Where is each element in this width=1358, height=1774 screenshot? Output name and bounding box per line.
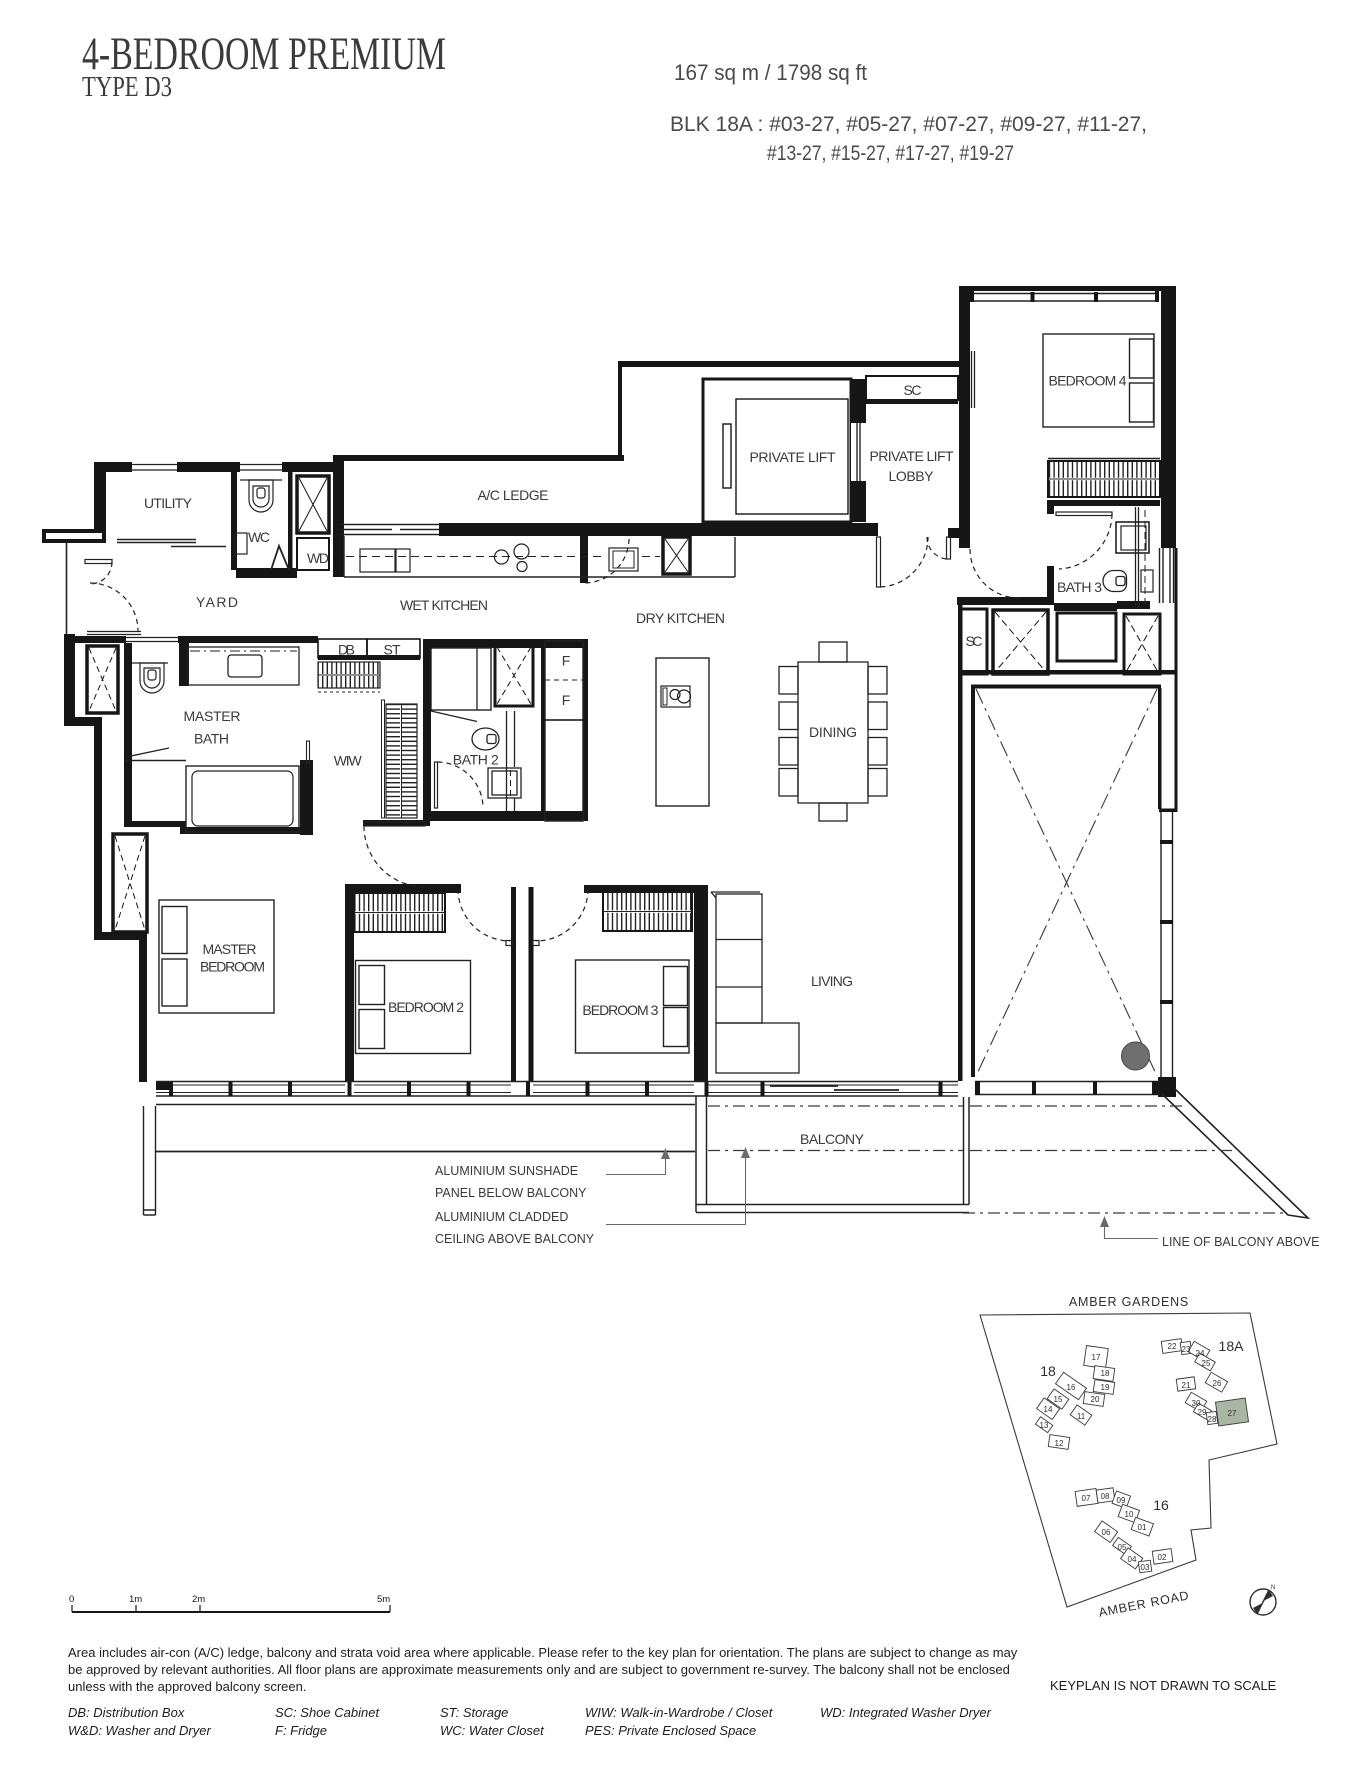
svg-text:be approved by relevant author: be approved by relevant authorities. All… [68, 1662, 1010, 1677]
svg-text:DRY KITCHEN: DRY KITCHEN [636, 610, 725, 626]
svg-text:17: 17 [1092, 1353, 1101, 1362]
svg-text:16: 16 [1153, 1497, 1169, 1513]
svg-text:#13-27, #15-27, #17-27, #19-27: #13-27, #15-27, #17-27, #19-27 [767, 142, 1014, 165]
svg-text:12: 12 [1055, 1439, 1064, 1448]
svg-text:DINING: DINING [809, 724, 857, 740]
svg-text:CEILING ABOVE BALCONY: CEILING ABOVE BALCONY [435, 1232, 595, 1246]
svg-text:02: 02 [1158, 1553, 1167, 1562]
svg-text:F: F [562, 692, 571, 708]
svg-text:18: 18 [1040, 1363, 1056, 1379]
svg-text:N: N [1271, 1585, 1275, 1591]
svg-text:21: 21 [1182, 1381, 1191, 1390]
svg-text:SC: SC [904, 382, 922, 398]
svg-text:ST: Storage: ST: Storage [440, 1705, 508, 1720]
svg-text:26: 26 [1213, 1379, 1222, 1388]
svg-text:25: 25 [1202, 1359, 1211, 1368]
svg-text:ALUMINIUM SUNSHADE: ALUMINIUM SUNSHADE [435, 1164, 578, 1178]
svg-text:DB: Distribution Box: DB: Distribution Box [68, 1705, 185, 1720]
svg-text:01: 01 [1138, 1523, 1147, 1532]
svg-text:UTILITY: UTILITY [144, 495, 193, 511]
svg-text:08: 08 [1101, 1492, 1110, 1501]
svg-text:22: 22 [1168, 1342, 1177, 1351]
svg-text:29: 29 [1198, 1408, 1207, 1417]
svg-text:0: 0 [69, 1594, 74, 1605]
svg-text:23: 23 [1182, 1345, 1191, 1354]
svg-text:19: 19 [1101, 1383, 1110, 1392]
svg-text:BLK 18A : #03-27, #05-27, #07-: BLK 18A : #03-27, #05-27, #07-27, #09-27… [670, 113, 1147, 136]
svg-text:30: 30 [1192, 1399, 1201, 1408]
svg-text:04: 04 [1128, 1555, 1137, 1564]
svg-text:1m: 1m [129, 1594, 142, 1605]
svg-text:PRIVATE LIFT: PRIVATE LIFT [750, 449, 836, 465]
svg-text:15: 15 [1054, 1395, 1063, 1404]
svg-text:A/C LEDGE: A/C LEDGE [478, 487, 549, 503]
svg-text:YARD: YARD [196, 594, 238, 610]
svg-text:WET KITCHEN: WET KITCHEN [400, 597, 488, 613]
svg-text:11: 11 [1077, 1412, 1086, 1421]
svg-text:LINE OF BALCONY ABOVE: LINE OF BALCONY ABOVE [1162, 1235, 1319, 1249]
svg-text:F: Fridge: F: Fridge [275, 1723, 327, 1738]
svg-text:06: 06 [1102, 1528, 1111, 1537]
svg-text:20: 20 [1091, 1395, 1100, 1404]
svg-text:24: 24 [1196, 1349, 1205, 1358]
svg-text:Area includes air-con (A/C) le: Area includes air-con (A/C) ledge, balco… [68, 1645, 1018, 1660]
svg-text:28: 28 [1208, 1415, 1217, 1424]
svg-text:18: 18 [1101, 1369, 1110, 1378]
svg-text:10: 10 [1125, 1510, 1134, 1519]
svg-text:TYPE D3: TYPE D3 [82, 71, 172, 103]
svg-text:MASTER: MASTER [203, 941, 257, 957]
svg-text:LOBBY: LOBBY [889, 468, 935, 484]
svg-text:BATH 2: BATH 2 [453, 752, 499, 768]
svg-text:5m: 5m [377, 1594, 390, 1605]
svg-text:18A: 18A [1219, 1338, 1245, 1354]
svg-text:W&D: Washer and Dryer: W&D: Washer and Dryer [68, 1723, 211, 1738]
svg-text:07: 07 [1082, 1494, 1091, 1503]
svg-text:DB: DB [338, 642, 355, 658]
svg-text:ST: ST [384, 642, 401, 658]
svg-text:WIW: Walk-in-Wardrobe / Closet: WIW: Walk-in-Wardrobe / Closet [585, 1705, 774, 1720]
svg-text:WC: Water Closet: WC: Water Closet [440, 1723, 545, 1738]
svg-text:03: 03 [1141, 1563, 1150, 1572]
svg-text:unless with the approved balco: unless with the approved balcony screen. [68, 1679, 306, 1694]
svg-text:13: 13 [1040, 1421, 1049, 1430]
svg-text:ALUMINIUM CLADDED: ALUMINIUM CLADDED [435, 1210, 568, 1224]
svg-text:F: F [562, 653, 571, 669]
svg-text:14: 14 [1044, 1405, 1053, 1414]
svg-text:27: 27 [1228, 1409, 1237, 1418]
svg-text:BATH: BATH [194, 731, 229, 747]
svg-text:05: 05 [1118, 1543, 1127, 1552]
svg-text:KEYPLAN IS NOT DRAWN TO SCALE: KEYPLAN IS NOT DRAWN TO SCALE [1050, 1678, 1277, 1693]
svg-text:16: 16 [1067, 1383, 1076, 1392]
svg-text:09: 09 [1117, 1496, 1126, 1505]
svg-text:PRIVATE LIFT: PRIVATE LIFT [870, 448, 954, 464]
svg-text:167 sq m / 1798 sq ft: 167 sq m / 1798 sq ft [674, 60, 867, 85]
svg-text:PES: Private Enclosed Space: PES: Private Enclosed Space [585, 1723, 756, 1738]
svg-text:AMBER GARDENS: AMBER GARDENS [1069, 1295, 1189, 1309]
svg-text:BALCONY: BALCONY [800, 1131, 865, 1147]
svg-text:BEDROOM: BEDROOM [200, 959, 265, 975]
svg-text:LIVING: LIVING [811, 973, 853, 989]
svg-text:2m: 2m [192, 1594, 205, 1605]
svg-text:WC: WC [248, 529, 270, 545]
svg-text:PANEL BELOW BALCONY: PANEL BELOW BALCONY [435, 1186, 587, 1200]
svg-text:BEDROOM 3: BEDROOM 3 [582, 1002, 658, 1018]
svg-text:MASTER: MASTER [184, 708, 241, 724]
svg-text:SC: Shoe Cabinet: SC: Shoe Cabinet [275, 1705, 380, 1720]
svg-text:BEDROOM 4: BEDROOM 4 [1049, 373, 1127, 389]
svg-text:SC: SC [966, 633, 983, 649]
svg-text:BEDROOM 2: BEDROOM 2 [388, 999, 464, 1015]
svg-text:WD: WD [307, 550, 329, 566]
svg-text:BATH 3: BATH 3 [1057, 579, 1102, 595]
svg-text:WD: Integrated Washer Dryer: WD: Integrated Washer Dryer [820, 1705, 992, 1720]
svg-text:WIW: WIW [334, 753, 363, 769]
